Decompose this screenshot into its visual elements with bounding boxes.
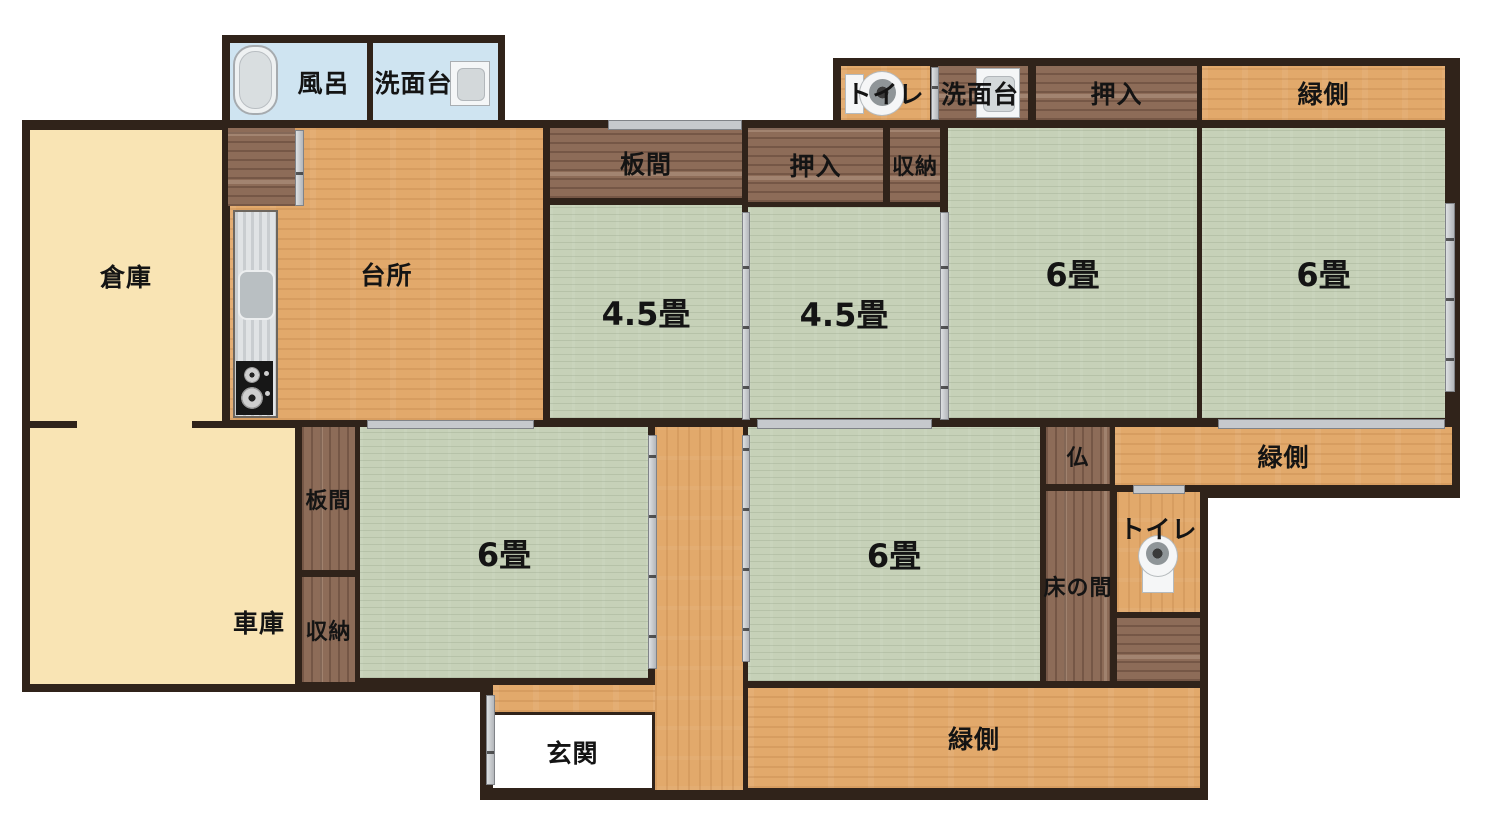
room-souko: 倉庫 [30,130,222,421]
sliding-door [295,130,304,206]
room-engawa-right: 緑側 [1115,427,1452,485]
room-label: 収納 [892,149,938,181]
room-rokujo-top-left: 6畳 [948,128,1197,418]
sliding-door [940,212,949,420]
room-shuno-mid: 収納 [890,128,940,202]
room-label: 緑側 [1257,438,1309,474]
room-label: 4.5畳 [800,290,889,336]
room-itama-top: 板間 [550,128,742,198]
sliding-door [931,67,939,120]
room-engawa-bottom: 緑側 [748,688,1200,788]
kitchen-entry-floor [228,128,295,206]
stove-icon [236,361,273,415]
room-label: 6畳 [867,531,921,577]
room-label: 洗面台 [374,64,452,100]
sliding-door [742,212,750,420]
room-tatami45-right: 4.5畳 [748,207,940,418]
sliding-door [486,695,495,785]
closet-bottom [1117,618,1200,681]
sliding-door [367,420,534,429]
room-label: 仏 [1066,440,1089,472]
room-label: 6畳 [1296,250,1350,296]
genkan-step [493,685,655,712]
room-butsu: 仏 [1046,427,1110,484]
room-label: 6畳 [477,530,531,576]
room-engawa-top: 緑側 [1202,66,1445,120]
room-label: 4.5畳 [602,289,691,335]
room-tatami45-left: 4.5畳 [550,205,742,418]
kitchen-sink-icon [238,270,275,320]
room-label: トイレ [846,75,924,111]
room-label: 倉庫 [100,258,152,294]
floor-plan: 風呂 洗面台 トイレ 洗面台 押入 緑側 倉庫 車庫 台所 [0,0,1500,833]
room-rokujo-bottom-left: 6畳 [360,427,648,678]
room-label: 収納 [305,614,351,646]
sliding-door [742,435,750,662]
room-label: 6畳 [1045,250,1099,296]
room-label: 車庫 [233,604,285,640]
room-label: 緑側 [1297,75,1349,111]
room-label: 洗面台 [941,75,1019,111]
room-label: 緑側 [948,720,1000,756]
sliding-door [1218,419,1445,429]
room-tokonoma: 床の間 [1046,491,1110,681]
room-label: トイレ [1119,510,1197,546]
room-itama-left: 板間 [302,427,355,570]
room-label: 床の間 [1044,570,1113,602]
room-label: 押入 [789,147,841,183]
room-label: 板間 [305,483,351,515]
window [1445,203,1455,392]
bathtub-icon [233,45,278,115]
room-label: 風呂 [297,64,349,100]
room-label: 玄関 [546,734,598,770]
corridor [655,427,743,790]
room-rokujo-bottom-mid: 6畳 [748,427,1040,681]
room-shako: 車庫 [30,428,295,684]
room-oshiire-mid: 押入 [748,128,883,202]
sliding-door [757,419,932,429]
sliding-door [1133,485,1185,494]
room-label: 押入 [1090,75,1142,111]
room-label: 板間 [620,145,672,181]
window [608,120,742,130]
room-rokujo-top-right: 6畳 [1202,128,1445,418]
kitchen-counter [233,210,278,418]
room-genkan: 玄関 [493,715,652,788]
room-oshiire-top: 押入 [1036,66,1197,120]
room-shuno-left: 収納 [302,577,355,682]
room-label: 台所 [360,256,412,292]
sink-icon [450,61,490,106]
sliding-door [648,435,657,669]
